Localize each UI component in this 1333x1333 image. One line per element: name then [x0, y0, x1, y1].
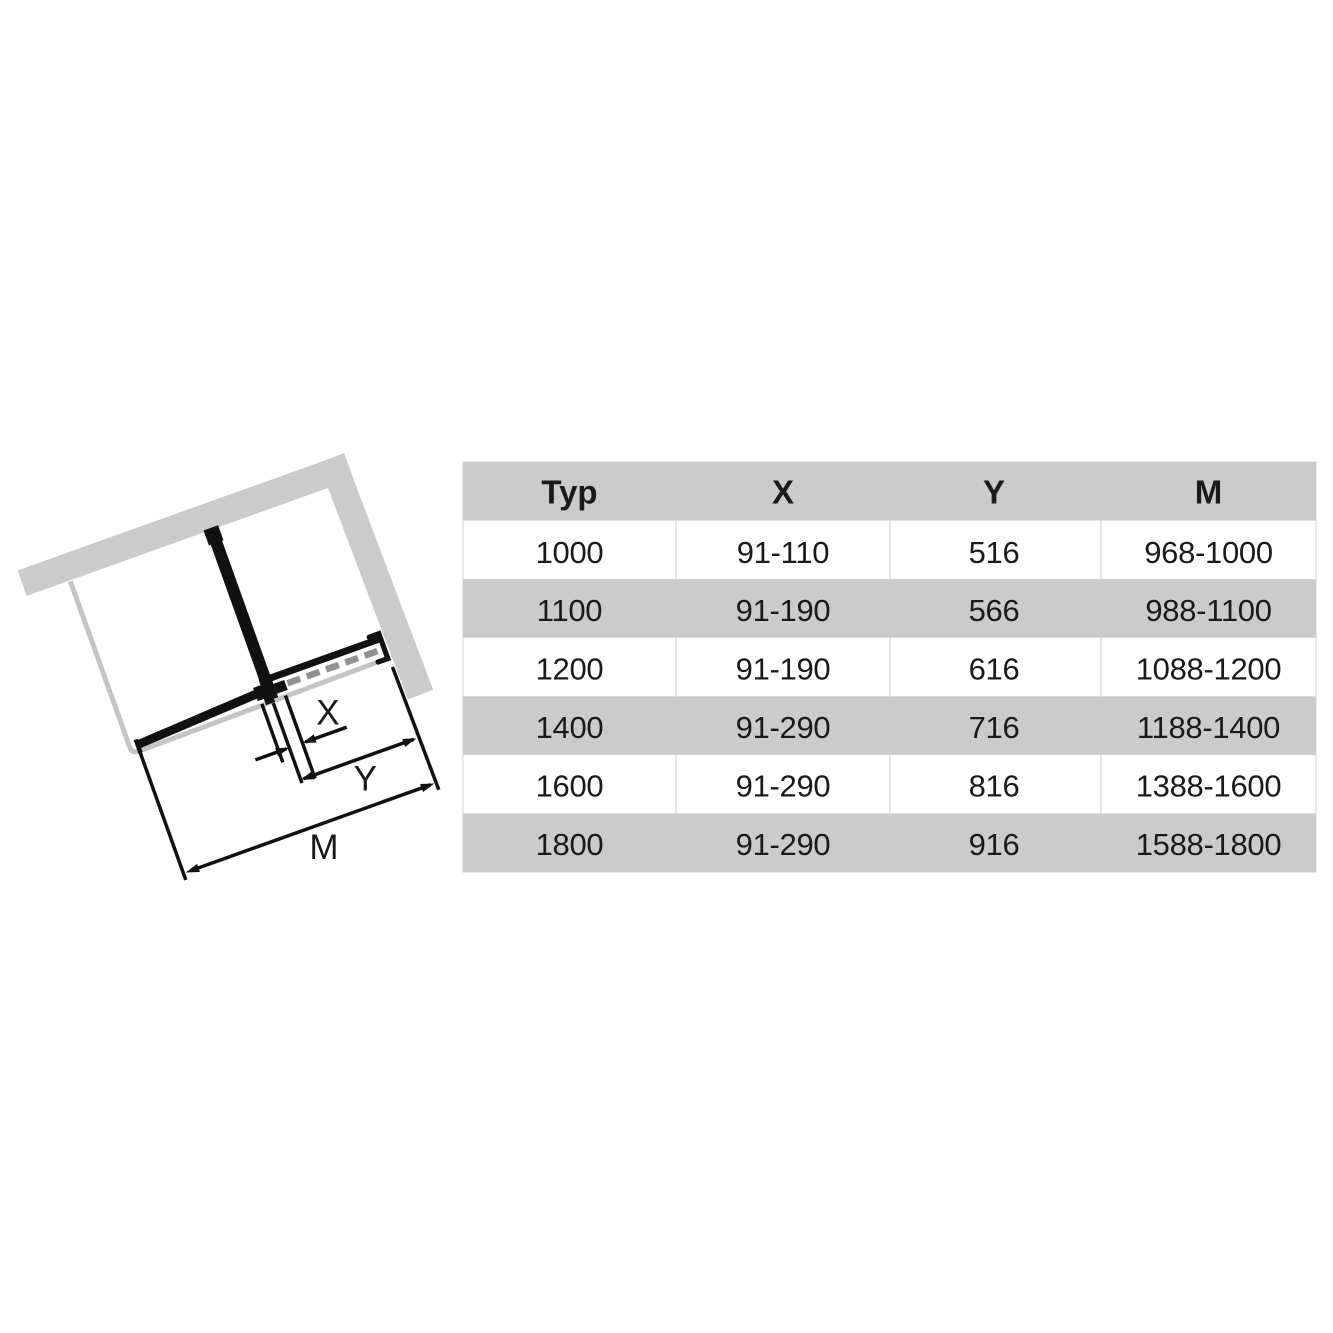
- svg-text:1400: 1400: [536, 710, 604, 745]
- svg-text:M: M: [1195, 474, 1223, 511]
- svg-text:968-1000: 968-1000: [1144, 535, 1273, 570]
- svg-text:616: 616: [969, 652, 1020, 687]
- svg-text:816: 816: [969, 768, 1020, 803]
- svg-text:91-190: 91-190: [736, 652, 831, 687]
- svg-text:1200: 1200: [536, 652, 604, 687]
- svg-text:1388-1600: 1388-1600: [1136, 768, 1282, 803]
- svg-text:916: 916: [969, 827, 1020, 862]
- svg-text:Y: Y: [354, 759, 377, 798]
- svg-text:Typ: Typ: [541, 474, 597, 511]
- svg-text:91-110: 91-110: [737, 535, 829, 570]
- svg-text:91-290: 91-290: [736, 710, 831, 745]
- svg-text:X: X: [316, 694, 339, 733]
- svg-text:1088-1200: 1088-1200: [1136, 652, 1282, 687]
- svg-text:91-290: 91-290: [736, 827, 831, 862]
- svg-text:716: 716: [969, 710, 1020, 745]
- svg-text:M: M: [309, 828, 338, 867]
- svg-text:1000: 1000: [536, 535, 604, 570]
- svg-text:91-190: 91-190: [736, 593, 831, 628]
- svg-text:1800: 1800: [536, 827, 604, 862]
- svg-text:516: 516: [969, 535, 1020, 570]
- svg-text:988-1100: 988-1100: [1145, 593, 1271, 628]
- svg-text:1188-1400: 1188-1400: [1137, 710, 1280, 745]
- svg-text:91-290: 91-290: [736, 768, 831, 803]
- svg-text:Y: Y: [983, 474, 1005, 511]
- svg-text:1100: 1100: [537, 593, 603, 628]
- svg-text:X: X: [772, 474, 794, 511]
- svg-text:1600: 1600: [536, 768, 604, 803]
- svg-text:1588-1800: 1588-1800: [1136, 827, 1282, 862]
- svg-text:566: 566: [969, 593, 1020, 628]
